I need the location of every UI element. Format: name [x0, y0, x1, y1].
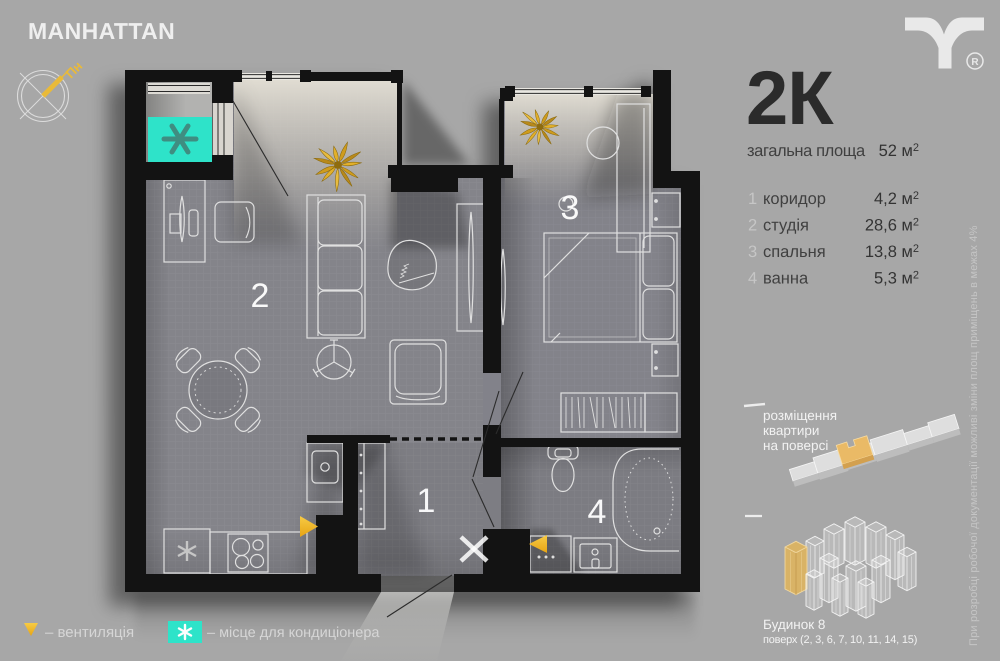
svg-text:спальня: спальня	[763, 243, 826, 261]
svg-text:28,6 м2: 28,6 м2	[865, 217, 919, 235]
svg-text:коридор: коридор	[763, 190, 826, 208]
svg-text:1: 1	[417, 482, 436, 520]
svg-text:Будинок 8: Будинок 8	[763, 617, 825, 632]
svg-text:квартири: квартири	[763, 423, 819, 438]
svg-text:ванна: ванна	[763, 270, 809, 288]
svg-text:R: R	[971, 57, 979, 68]
svg-text:13,8 м2: 13,8 м2	[865, 243, 919, 261]
svg-text:MANHATTAN: MANHATTAN	[28, 18, 175, 44]
svg-text:5,3 м2: 5,3 м2	[874, 270, 919, 288]
svg-text:4: 4	[748, 270, 757, 288]
svg-text:на поверсі: на поверсі	[763, 438, 828, 453]
svg-text:2: 2	[748, 217, 757, 235]
svg-text:– місце для кондиціонера: – місце для кондиціонера	[207, 625, 380, 641]
svg-text:3: 3	[561, 189, 580, 227]
svg-text:студія: студія	[763, 217, 809, 235]
svg-text:поверх (2, 3, 6, 7, 10, 11, 14: поверх (2, 3, 6, 7, 10, 11, 14, 15)	[763, 634, 917, 646]
svg-text:При розробці робочої документа: При розробці робочої документації можлив…	[968, 225, 980, 646]
svg-text:3: 3	[748, 243, 757, 261]
svg-text:1: 1	[748, 190, 757, 208]
svg-text:4: 4	[588, 493, 607, 531]
svg-text:4,2 м2: 4,2 м2	[874, 190, 919, 208]
svg-text:2К: 2К	[746, 56, 834, 141]
svg-text:– вентиляція: – вентиляція	[45, 624, 134, 641]
svg-text:загальна площа: загальна площа	[747, 142, 866, 160]
svg-text:розміщення: розміщення	[763, 408, 837, 423]
svg-text:2: 2	[251, 277, 270, 315]
